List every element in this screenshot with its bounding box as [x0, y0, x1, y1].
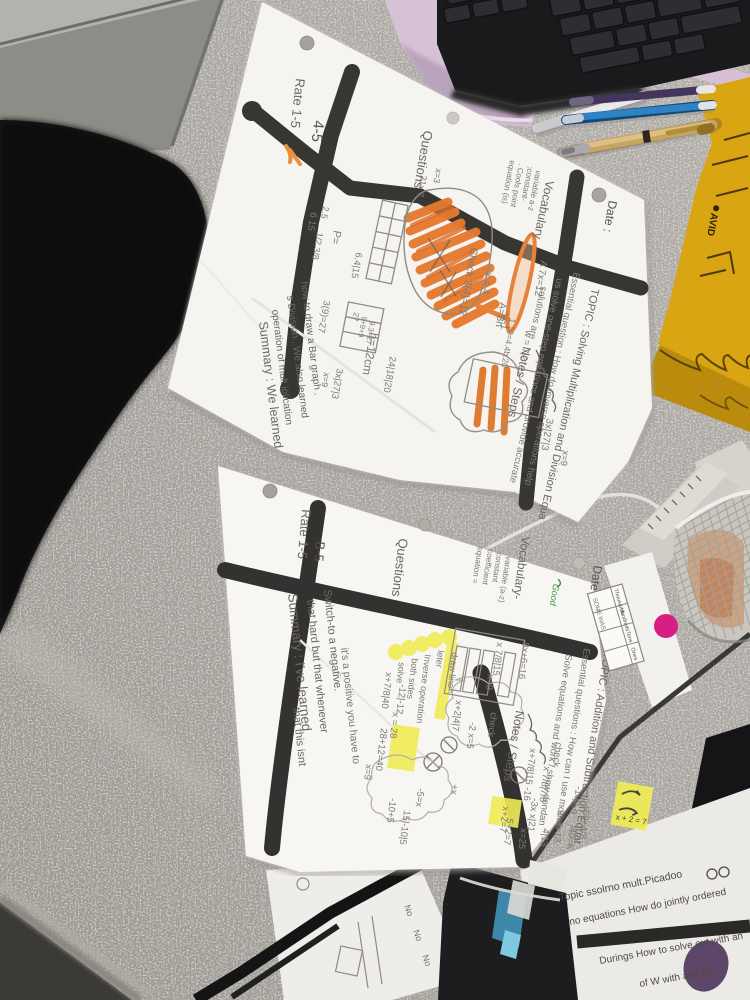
- svg-text:2.5: 2.5: [319, 206, 331, 220]
- svg-text:+x: +x: [448, 784, 460, 796]
- svg-text:-5=x: -5=x: [413, 788, 426, 808]
- svg-text:leter: leter: [434, 650, 446, 669]
- svg-text:4|13: 4|13: [538, 828, 551, 848]
- svg-text:B-5: B-5: [311, 541, 328, 562]
- svg-text:4-5: 4-5: [308, 120, 327, 143]
- svg-text:P=: P=: [329, 229, 343, 245]
- svg-text:x=9: x=9: [361, 764, 374, 781]
